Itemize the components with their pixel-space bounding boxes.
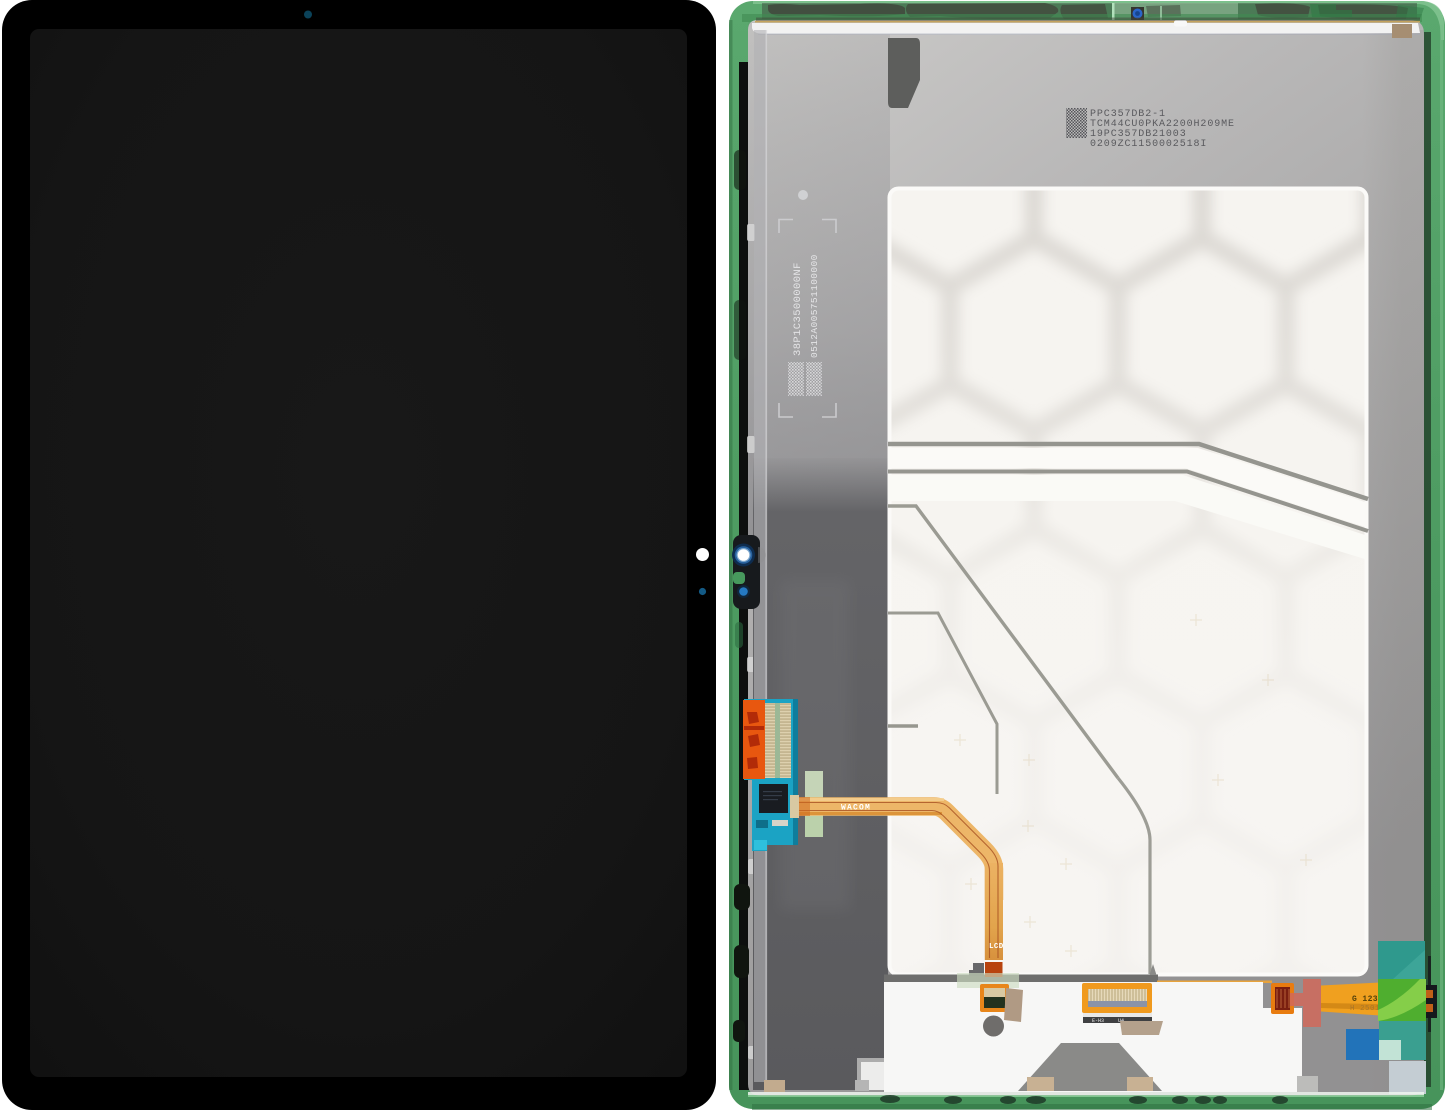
svg-text:38P1C3500000NF: 38P1C3500000NF	[792, 262, 804, 356]
svg-text:0512A005751100000: 0512A005751100000	[809, 254, 820, 358]
svg-text:E-H3: E-H3	[1092, 1018, 1104, 1024]
svg-text:H 2501: H 2501	[1350, 1005, 1380, 1013]
svg-text:0209ZC1150002518I: 0209ZC1150002518I	[1090, 139, 1207, 150]
svg-text:LCD: LCD	[989, 943, 1004, 951]
svg-text:WACOM: WACOM	[841, 804, 871, 813]
